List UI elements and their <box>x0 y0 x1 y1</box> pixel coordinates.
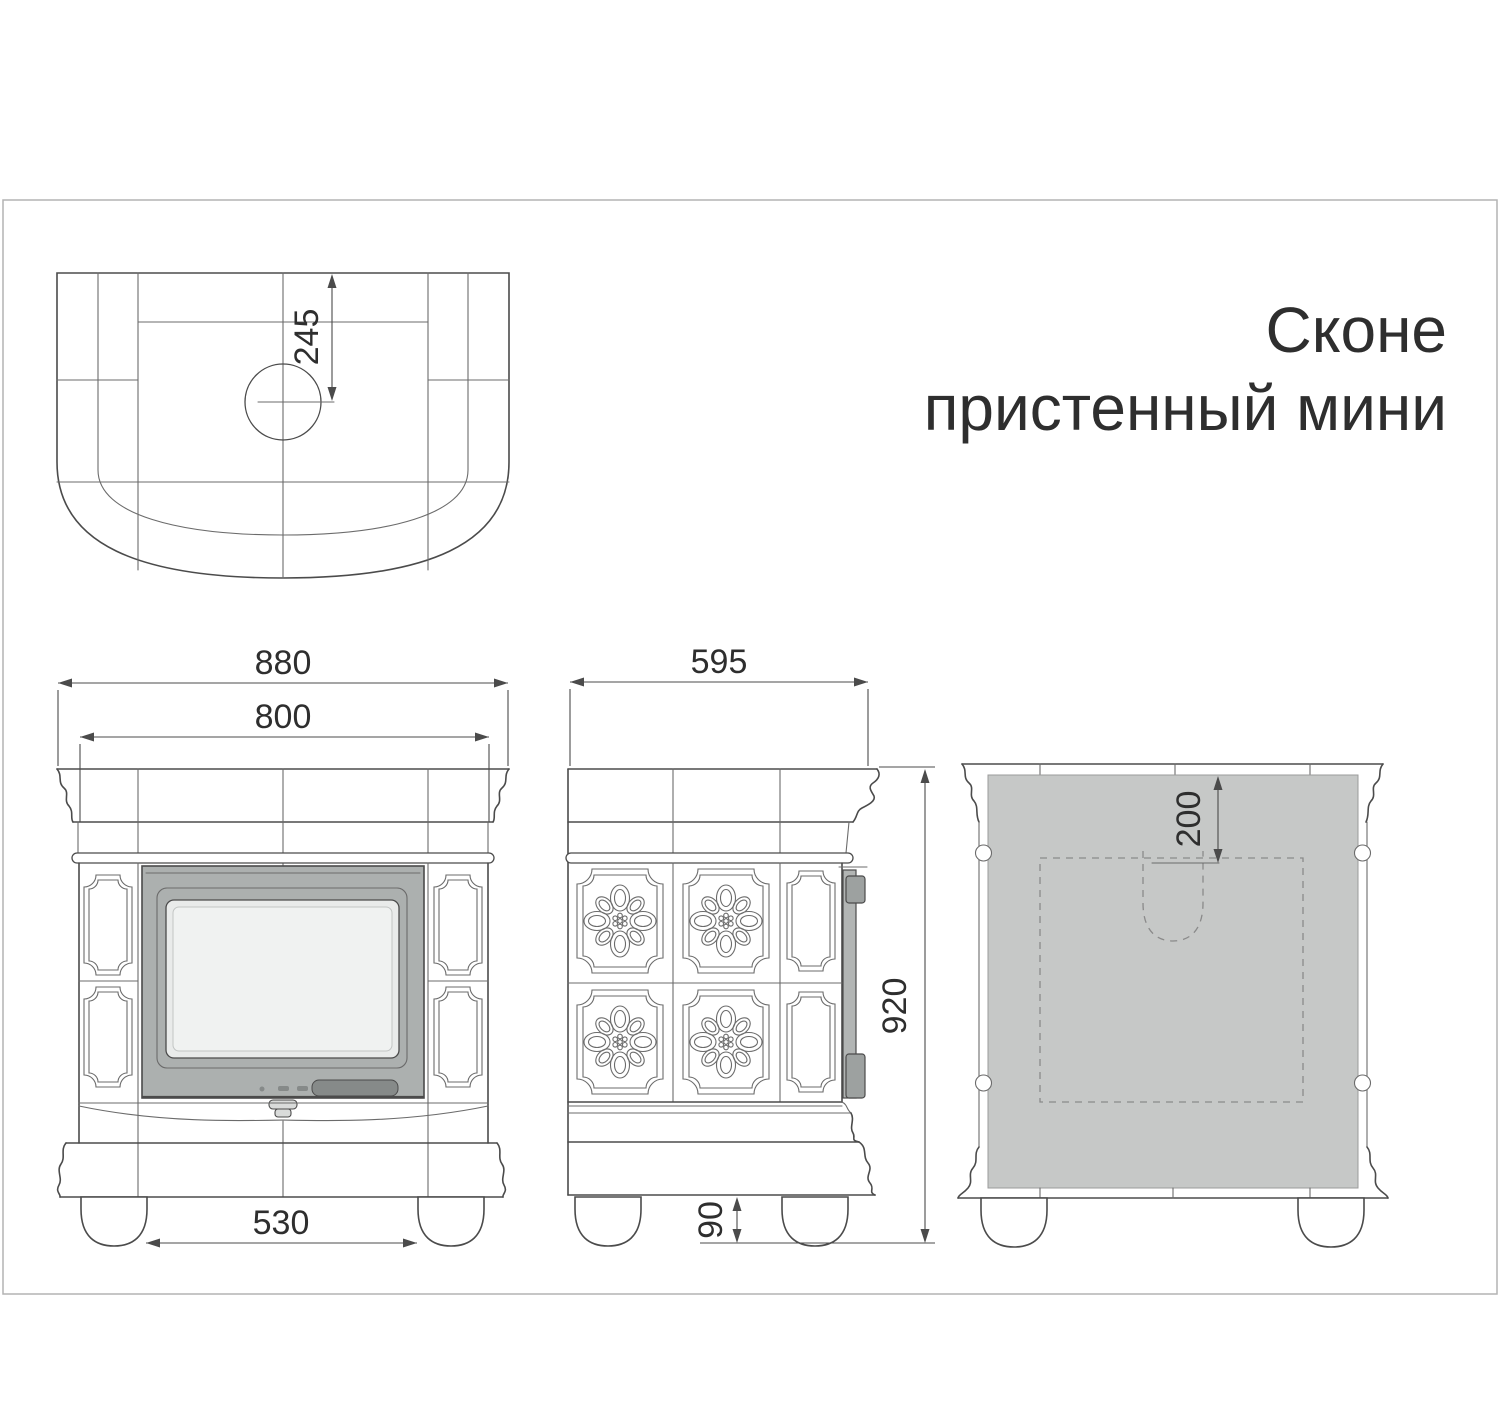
dim-245-label: 245 <box>288 309 326 366</box>
fire-door <box>142 866 424 1098</box>
dim-90-label: 90 <box>692 1201 730 1239</box>
bun-foot <box>981 1198 1047 1247</box>
pilaster-bead <box>976 1075 992 1091</box>
back-view: 200 <box>958 764 1388 1247</box>
dim-595-label: 595 <box>691 643 748 681</box>
door-glass-inner <box>173 907 392 1051</box>
shelf-edge <box>72 853 494 863</box>
bun-foot <box>782 1197 848 1246</box>
door-hinge-top <box>846 876 865 903</box>
door-hinge-bottom <box>846 1054 865 1098</box>
drawing-canvas: Сконе пристенный мини 245 880 <box>0 0 1500 1427</box>
title-line-2: пристенный мини <box>924 372 1447 444</box>
pilaster-bead <box>1355 1075 1371 1091</box>
title-line-1: Сконе <box>1266 294 1447 366</box>
ash-lip <box>312 1080 398 1096</box>
dim-800-label: 800 <box>255 698 312 736</box>
latch-knob <box>269 1100 297 1109</box>
air-control-slider <box>297 1086 308 1091</box>
air-control-dot <box>260 1087 265 1092</box>
latch-knob-stem <box>275 1109 291 1117</box>
dim-880-label: 880 <box>255 644 312 682</box>
bun-foot <box>575 1197 641 1246</box>
shelf-edge <box>566 853 853 863</box>
bun-foot <box>1298 1198 1364 1247</box>
dim-200-label: 200 <box>1170 791 1208 848</box>
dim-920-label: 920 <box>876 978 914 1035</box>
bun-foot <box>81 1197 147 1246</box>
pilaster-bead <box>976 845 992 861</box>
technical-drawing-page: Сконе пристенный мини 245 880 <box>0 0 1500 1427</box>
air-control-slider <box>278 1086 289 1091</box>
dim-530-label: 530 <box>253 1204 310 1242</box>
bun-foot <box>418 1197 484 1246</box>
pilaster-bead <box>1355 845 1371 861</box>
